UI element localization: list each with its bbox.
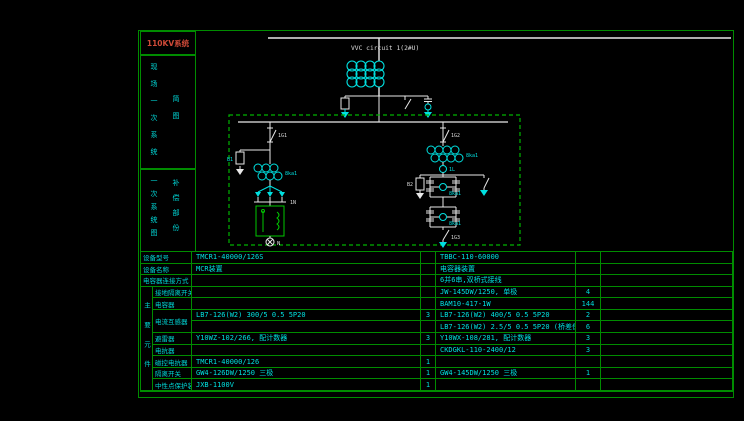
table-value-primary bbox=[192, 321, 421, 333]
table-row-label: 设备型号 bbox=[141, 252, 192, 264]
table-qty-primary: 1 bbox=[421, 379, 436, 391]
bridge-ct-label: 8ka1 bbox=[449, 191, 461, 197]
table-value-secondary: LB7-126(W2) 400/5 0.5 5P20 bbox=[436, 310, 576, 322]
switch-label: 1G3 bbox=[451, 235, 460, 241]
disconnector-icon bbox=[267, 128, 276, 142]
table-qty-secondary: 1 bbox=[576, 368, 601, 380]
ground-icon bbox=[424, 110, 432, 118]
table-qty-primary: 1 bbox=[421, 356, 436, 368]
table-cell-empty bbox=[601, 368, 733, 380]
table-row-label: 隔离开关 bbox=[153, 368, 192, 380]
table-qty-secondary bbox=[576, 356, 601, 368]
ct-label: 8ka1 bbox=[466, 153, 478, 159]
table-value-primary bbox=[192, 275, 421, 287]
compensation-boundary-box bbox=[229, 115, 520, 245]
table-cell-empty bbox=[601, 298, 733, 310]
bus-label: VVC circuit 1(2#U) bbox=[351, 45, 419, 52]
table-qty-secondary: 3 bbox=[576, 333, 601, 345]
table-value-primary: Y10WZ-102/266, 配计数器 bbox=[192, 333, 421, 345]
table-cell-empty bbox=[601, 345, 733, 357]
arrester-label: B2 bbox=[407, 182, 413, 188]
table-qty-primary bbox=[421, 345, 436, 357]
table-qty-primary bbox=[421, 298, 436, 310]
neutral-label: N bbox=[277, 241, 280, 247]
table-row-label: 中性点保护装置 bbox=[153, 379, 192, 391]
table-value-secondary: JW-145DW/1250, 单极 bbox=[436, 287, 576, 299]
table-cell-empty bbox=[601, 275, 733, 287]
table-value-secondary bbox=[436, 379, 576, 391]
table-row-label: 电容器 bbox=[153, 298, 192, 310]
table-qty-secondary: 6 bbox=[576, 321, 601, 333]
table-cell-empty bbox=[601, 379, 733, 391]
table-qty-primary: 3 bbox=[421, 310, 436, 322]
table-qty-primary bbox=[421, 264, 436, 276]
table-group-label: 主要元件 bbox=[141, 287, 153, 391]
table-qty-secondary bbox=[576, 264, 601, 276]
table-value-secondary: TBBC-110-60000 bbox=[436, 252, 576, 264]
table-qty-primary: 1 bbox=[421, 368, 436, 380]
neutral-device-icon bbox=[266, 238, 274, 246]
table-row-label: 电流互感器 bbox=[153, 310, 192, 333]
table-qty-secondary bbox=[576, 379, 601, 391]
table-value-secondary bbox=[436, 356, 576, 368]
cad-drawing-screen: 110KV系统 现场一次系统 简图 一次系统图 补偿部份 VVC circuit… bbox=[0, 0, 744, 421]
disconnector-icon bbox=[440, 128, 449, 142]
table-row-label: 设备名称 bbox=[141, 264, 192, 276]
table-qty-primary: 3 bbox=[421, 333, 436, 345]
table-row-label: 磁控电抗器 bbox=[153, 356, 192, 368]
mcr-reactor-icon bbox=[256, 206, 284, 236]
table-value-primary: TMCR1-40000/126 bbox=[192, 356, 421, 368]
bypass-switch-icon bbox=[480, 175, 489, 196]
top-bus bbox=[268, 38, 731, 96]
table-qty-primary bbox=[421, 252, 436, 264]
table-value-primary bbox=[192, 298, 421, 310]
equipment-spec-table: 主要元件设备型号TMCR1-40000/126STBBC-110-60000设备… bbox=[140, 251, 734, 392]
table-value-secondary: 电容器装置 bbox=[436, 264, 576, 276]
table-value-primary: TMCR1-40000/126S bbox=[192, 252, 421, 264]
table-qty-primary bbox=[421, 321, 436, 333]
table-qty-secondary bbox=[576, 252, 601, 264]
table-row-label: 接地隔离开关 bbox=[153, 287, 192, 299]
table-cell-empty bbox=[601, 252, 733, 264]
ct-icon bbox=[427, 146, 463, 162]
table-value-primary: JXB-1100V bbox=[192, 379, 421, 391]
mcr-branch: 1G1 B1 8ka1 bbox=[227, 122, 297, 247]
table-cell-empty bbox=[601, 333, 733, 345]
capacitor-branch: 1G2 8ka1 1L B2 bbox=[407, 122, 489, 248]
table-value-secondary: 6并6串,双桥式接线 bbox=[436, 275, 576, 287]
table-value-secondary: LB7-126(W2) 2.5/5 0.5 5P20 (桥差保护) bbox=[436, 321, 576, 333]
table-qty-secondary: 3 bbox=[576, 345, 601, 357]
table-qty-secondary: 4 bbox=[576, 287, 601, 299]
table-value-secondary: CKDGKL-110-2400/12 bbox=[436, 345, 576, 357]
arrester-icon bbox=[416, 175, 424, 199]
ct-label: 8ka1 bbox=[285, 171, 297, 177]
table-qty-secondary bbox=[576, 275, 601, 287]
reactor-circle-label: 1L bbox=[449, 167, 455, 173]
table-qty-secondary: 144 bbox=[576, 298, 601, 310]
arrester-label: B1 bbox=[227, 157, 233, 163]
table-cell-empty bbox=[601, 321, 733, 333]
table-qty-primary bbox=[421, 275, 436, 287]
bridge-ct-label: 8ka1 bbox=[449, 221, 461, 227]
ground-icon bbox=[341, 109, 349, 118]
station-aux-branch bbox=[341, 96, 432, 122]
table-cell-empty bbox=[601, 264, 733, 276]
table-row-label: 避雷器 bbox=[153, 333, 192, 345]
table-cell-empty bbox=[601, 356, 733, 368]
switch-label: 1G2 bbox=[451, 133, 460, 139]
table-value-primary: GW4-126DW/1250 三极 bbox=[192, 368, 421, 380]
table-row-label: 电容器连接方式 bbox=[141, 275, 192, 287]
table-value-primary bbox=[192, 287, 421, 299]
table-row-label: 电抗器 bbox=[153, 345, 192, 357]
ct-icon bbox=[254, 164, 282, 180]
table-value-primary: LB7-126(W2) 300/5 0.5 5P20 bbox=[192, 310, 421, 322]
schematic-diagram: VVC circuit 1(2#U) bbox=[138, 30, 733, 251]
table-value-primary bbox=[192, 345, 421, 357]
table-value-secondary: Y10WX-108/281, 配计数器 bbox=[436, 333, 576, 345]
table-qty-primary bbox=[421, 287, 436, 299]
junction-label: 1N bbox=[290, 200, 296, 206]
table-cell-empty bbox=[601, 287, 733, 299]
table-value-primary: MCR装置 bbox=[192, 264, 421, 276]
switch-label: 1G1 bbox=[278, 133, 287, 139]
phase-split-arrows bbox=[254, 186, 286, 202]
table-value-secondary: BAM10-417-1W bbox=[436, 298, 576, 310]
transformer-symbol bbox=[347, 61, 384, 87]
table-value-secondary: GW4-145DW/1250 三极 bbox=[436, 368, 576, 380]
table-cell-empty bbox=[601, 310, 733, 322]
arrester-icon bbox=[236, 150, 244, 175]
table-qty-secondary: 2 bbox=[576, 310, 601, 322]
